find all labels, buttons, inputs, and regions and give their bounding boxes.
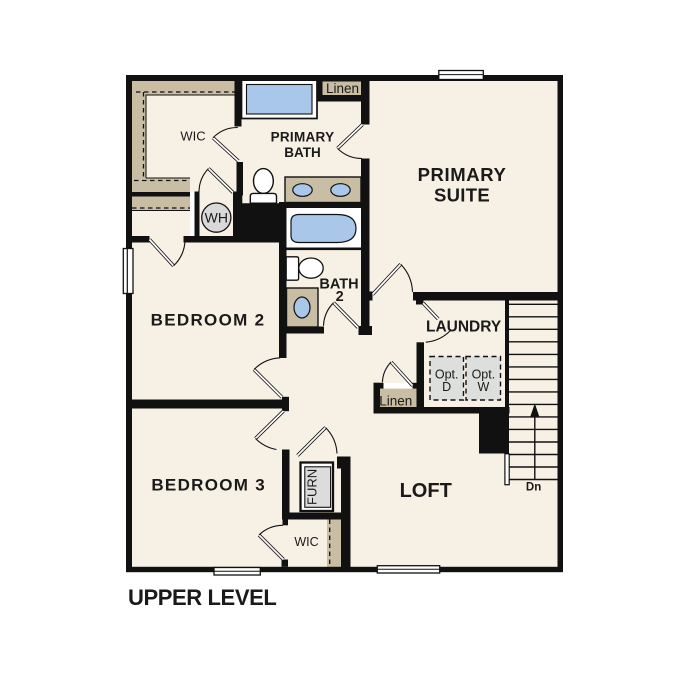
svg-text:W: W	[477, 380, 489, 394]
svg-text:Linen: Linen	[326, 81, 359, 96]
svg-text:FURN: FURN	[304, 469, 319, 505]
svg-text:LOFT: LOFT	[400, 480, 452, 502]
svg-text:D: D	[442, 380, 451, 394]
svg-text:WH: WH	[205, 209, 228, 225]
svg-text:PRIMARY: PRIMARY	[418, 164, 507, 185]
svg-text:2: 2	[336, 289, 344, 305]
svg-text:PRIMARY: PRIMARY	[271, 129, 335, 144]
svg-text:Dn: Dn	[526, 482, 541, 494]
svg-text:LAUNDRY: LAUNDRY	[426, 319, 502, 336]
svg-text:BEDROOM 3: BEDROOM 3	[151, 476, 266, 495]
svg-text:BATH: BATH	[284, 145, 321, 160]
svg-text:SUITE: SUITE	[434, 185, 490, 206]
svg-text:WIC: WIC	[180, 129, 205, 144]
svg-text:UPPER LEVEL: UPPER LEVEL	[128, 585, 276, 610]
svg-text:WIC: WIC	[294, 535, 318, 549]
svg-text:Linen: Linen	[379, 394, 412, 409]
svg-text:BEDROOM 2: BEDROOM 2	[151, 311, 266, 330]
